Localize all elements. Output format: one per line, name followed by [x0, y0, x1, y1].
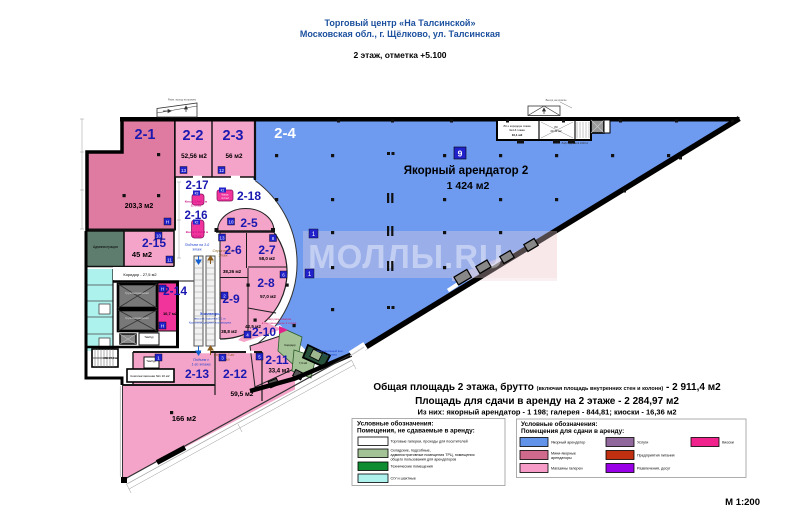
- svg-text:Эскалаторы: Эскалаторы: [200, 312, 221, 316]
- svg-text:38,8 м2: 38,8 м2: [221, 329, 237, 334]
- svg-text:2-4: 2-4: [274, 125, 296, 142]
- svg-text:Комплектовочная №1 10 м2: Комплектовочная №1 10 м2: [130, 374, 169, 378]
- svg-text:2-3: 2-3: [223, 128, 244, 144]
- svg-text:МОЛЛЫ.RU: МОЛЛЫ.RU: [308, 238, 504, 275]
- svg-text:со 2 этажа: со 2 этажа: [323, 353, 337, 357]
- svg-text:Киоски: Киоски: [722, 441, 734, 445]
- svg-text:Тамбур: Тамбур: [146, 359, 156, 363]
- svg-text:2 этаж, отметка +5.100: 2 этаж, отметка +5.100: [353, 50, 446, 60]
- svg-text:2-5: 2-5: [240, 216, 258, 230]
- svg-text:Подъем с: Подъем с: [193, 358, 209, 362]
- svg-text:Рамп. выход на кровлю: Рамп. выход на кровлю: [168, 98, 196, 102]
- svg-text:Технические помещения: Технические помещения: [391, 465, 433, 469]
- svg-text:12: 12: [219, 168, 225, 173]
- svg-text:25К 37,4 м2: 25К 37,4 м2: [103, 356, 119, 360]
- svg-text:2-1: 2-1: [135, 127, 156, 143]
- svg-text:Торговый центр «На Талсинской»: Торговый центр «На Талсинской»: [325, 18, 476, 28]
- svg-text:2-15: 2-15: [142, 236, 166, 250]
- svg-text:№4-6 этажа: №4-6 этажа: [509, 128, 525, 132]
- svg-text:Выход на кровлю: Выход на кровлю: [546, 98, 567, 102]
- svg-text:Мини-якорные: Мини-якорные: [551, 452, 576, 456]
- svg-text:Из них: якорный арендатор - 1: Из них: якорный арендатор - 1 198; галер…: [417, 408, 676, 417]
- svg-text:9: 9: [458, 149, 463, 159]
- svg-text:10: 10: [156, 234, 162, 239]
- svg-text:Грузопассажирский: Грузопассажирский: [125, 316, 149, 320]
- svg-text:М 1:200: М 1:200: [725, 497, 760, 508]
- svg-text:Складские, подсобные,: Складские, подсобные,: [391, 449, 431, 453]
- svg-text:Администрация: Администрация: [93, 245, 118, 249]
- svg-text:2-7: 2-7: [258, 243, 276, 257]
- svg-text:5,76 м2: 5,76 м2: [191, 204, 202, 208]
- svg-text:К1: К1: [221, 189, 225, 193]
- svg-text:2-12: 2-12: [223, 367, 247, 381]
- svg-text:45 м2: 45 м2: [132, 250, 152, 259]
- svg-text:57,0 м2: 57,0 м2: [260, 294, 276, 299]
- svg-text:административные помещения ТРЦ: административные помещения ТРЦ, помещени…: [391, 453, 475, 457]
- svg-text:3,2 м2: 3,2 м2: [221, 196, 229, 200]
- svg-text:общего пользования для арендат: общего пользования для арендаторов: [391, 458, 457, 462]
- svg-text:Якорный арендатор 2: Якорный арендатор 2: [404, 165, 529, 177]
- svg-text:этаж: этаж: [192, 248, 202, 252]
- svg-text:10,1 м2: 10,1 м2: [512, 133, 523, 137]
- svg-text:2-13: 2-13: [185, 367, 209, 381]
- svg-text:Магазины галереи: Магазины галереи: [551, 467, 583, 471]
- svg-text:2-11: 2-11: [265, 353, 289, 367]
- svg-text:Помещения для сдачи в аренду:: Помещения для сдачи в аренду:: [521, 428, 624, 435]
- svg-text:Помещения, не сдаваемые в арен: Помещения, не сдаваемые в аренду:: [357, 428, 475, 435]
- svg-text:2-14: 2-14: [163, 284, 187, 298]
- svg-text:Грузопассажирский: Грузопассажирский: [125, 291, 149, 295]
- svg-text:Развлечения, досуг: Развлечения, досуг: [637, 467, 671, 471]
- svg-text:38,26 м2: 38,26 м2: [223, 269, 242, 274]
- svg-text:арендаторы: арендаторы: [551, 456, 572, 460]
- svg-text:Условные обозначения:: Условные обозначения:: [357, 420, 434, 428]
- svg-text:2-8: 2-8: [257, 276, 275, 290]
- svg-text:Якорный арендатор: Якорный арендатор: [551, 441, 585, 445]
- svg-text:2-6: 2-6: [224, 243, 242, 257]
- svg-text:К3: К3: [195, 192, 199, 196]
- svg-text:7,9 м2: 7,9 м2: [299, 361, 308, 365]
- svg-text:203,3 м2: 203,3 м2: [125, 203, 154, 210]
- svg-text:2-17: 2-17: [185, 180, 208, 192]
- svg-text:10: 10: [228, 220, 234, 225]
- svg-text:Торговые галереи, проходы для: Торговые галереи, проходы для посетителе…: [391, 440, 468, 444]
- svg-text:166 м2: 166 м2: [172, 414, 196, 423]
- svg-text:Площадь для сдачи в аренду на: Площадь для сдачи в аренду на 2 этаже - …: [415, 396, 679, 407]
- svg-text:52,56 м2: 52,56 м2: [181, 153, 207, 160]
- svg-text:58,0 м2: 58,0 м2: [259, 256, 275, 261]
- svg-text:10,7 м2: 10,7 м2: [163, 311, 178, 316]
- svg-text:42,5 м2: 42,5 м2: [245, 324, 261, 329]
- svg-text:КрутизнаСредняя поставщика: КрутизнаСредняя поставщика: [189, 321, 231, 325]
- svg-text:Коридор - 27,5 м2: Коридор - 27,5 м2: [123, 272, 157, 277]
- svg-text:1 424 м2: 1 424 м2: [447, 180, 490, 192]
- svg-text:Тамбур: Тамбур: [144, 335, 154, 339]
- svg-text:Подъем на 3-й: Подъем на 3-й: [185, 243, 209, 247]
- svg-text:11: 11: [167, 258, 172, 263]
- svg-text:2-16: 2-16: [184, 210, 207, 222]
- svg-text:59,5 м2: 59,5 м2: [231, 391, 254, 398]
- svg-text:2-18: 2-18: [237, 189, 261, 203]
- svg-text:Н: Н: [166, 220, 169, 225]
- svg-text:Лифт грузовой 1000 кг: Лифт грузовой 1000 кг: [562, 141, 589, 145]
- svg-text:33,4 м2: 33,4 м2: [268, 369, 290, 375]
- svg-text:23,43 м2: 23,43 м2: [550, 129, 562, 133]
- svg-text:Коридор: Коридор: [284, 343, 295, 347]
- svg-text:Услуги: Услуги: [637, 441, 648, 445]
- svg-text:8,4 м2: 8,4 м2: [193, 234, 202, 238]
- svg-text:13: 13: [181, 168, 187, 173]
- svg-text:Условные обозначения:: Условные обозначения:: [521, 420, 598, 428]
- svg-text:Н: Н: [161, 287, 164, 292]
- svg-text:Московская обл., г. Щёлково, у: Московская обл., г. Щёлково, ул. Талсинс…: [300, 29, 500, 39]
- svg-text:56 м2: 56 м2: [226, 153, 243, 160]
- svg-text:13: 13: [219, 236, 225, 241]
- svg-text:С/У и шахтные: С/У и шахтные: [391, 477, 416, 481]
- svg-text:Предприятия питания: Предприятия питания: [637, 454, 675, 458]
- svg-text:2-2: 2-2: [183, 128, 204, 144]
- svg-text:1-го этажа: 1-го этажа: [191, 363, 210, 367]
- svg-text:Н: Н: [161, 324, 164, 329]
